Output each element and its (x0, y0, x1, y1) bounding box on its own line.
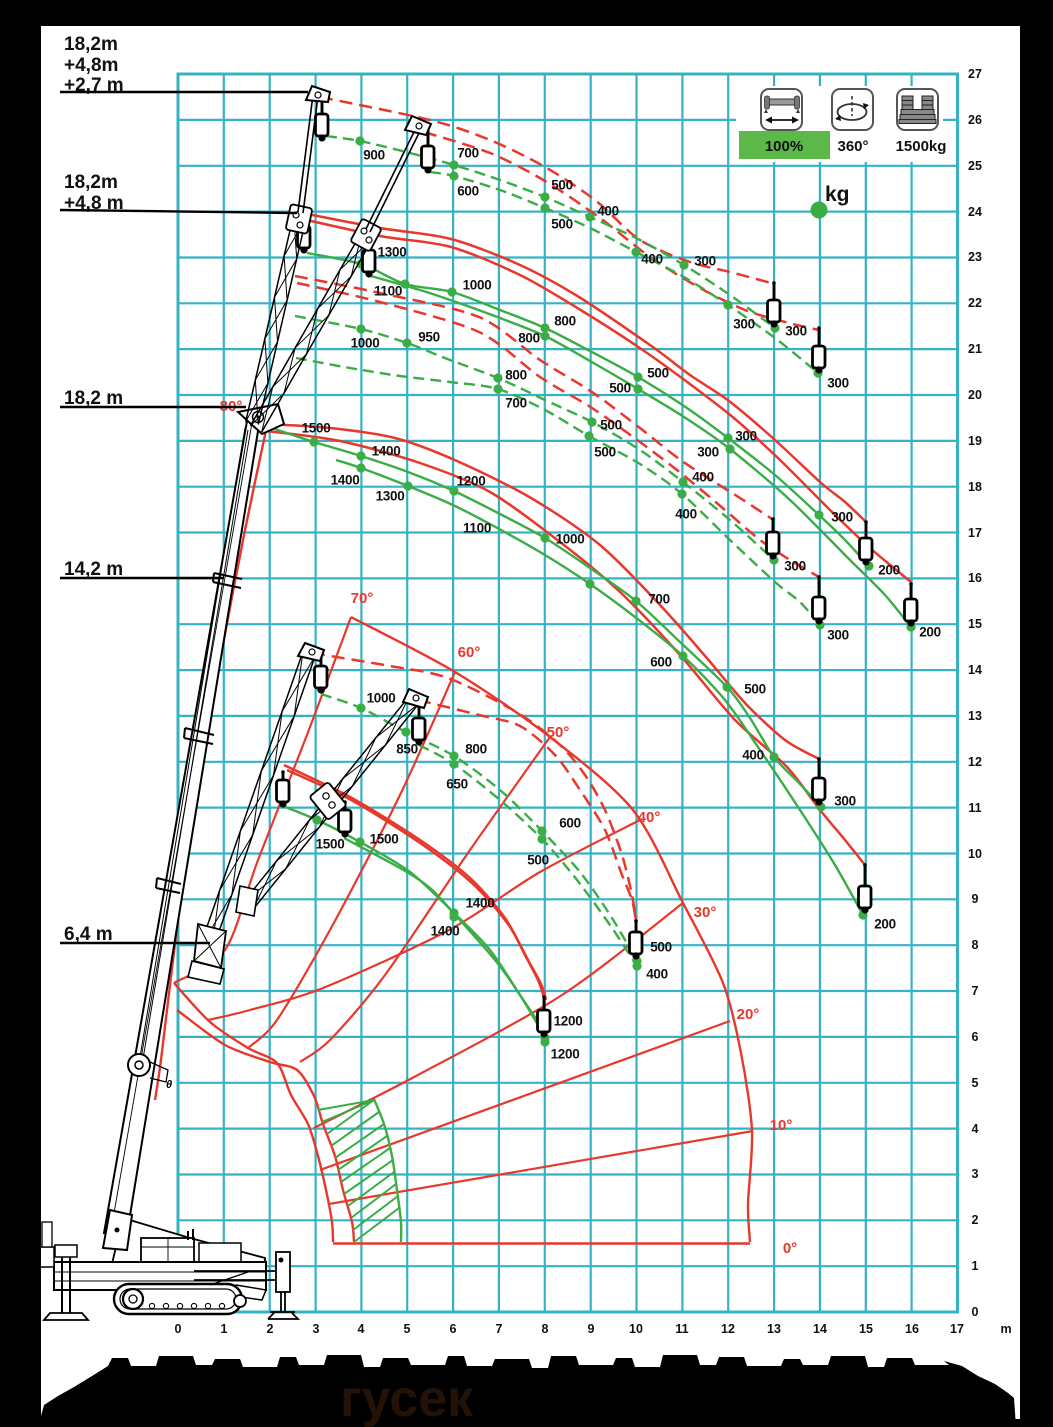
svg-text:17: 17 (950, 1322, 964, 1336)
svg-text:гусек: гусек (340, 1370, 474, 1427)
svg-text:600: 600 (650, 655, 672, 670)
svg-text:1500: 1500 (316, 837, 345, 852)
svg-text:1100: 1100 (374, 284, 402, 299)
svg-text:18,2m: 18,2m (64, 34, 118, 55)
svg-text:14: 14 (813, 1322, 827, 1336)
svg-text:400: 400 (646, 967, 668, 982)
svg-text:650: 650 (446, 777, 468, 792)
svg-text:700: 700 (457, 146, 479, 161)
svg-text:7: 7 (972, 984, 979, 998)
svg-text:300: 300 (827, 376, 849, 391)
svg-text:900: 900 (363, 148, 385, 163)
svg-text:300: 300 (694, 254, 716, 269)
svg-text:500: 500 (650, 940, 672, 955)
svg-text:100%: 100% (765, 138, 803, 155)
svg-text:400: 400 (597, 204, 619, 219)
svg-text:600: 600 (559, 816, 581, 831)
svg-text:16: 16 (968, 571, 982, 585)
svg-text:7: 7 (496, 1322, 503, 1336)
svg-text:360°: 360° (837, 138, 868, 155)
svg-text:5: 5 (404, 1322, 411, 1336)
svg-text:26: 26 (968, 113, 982, 127)
svg-text:17: 17 (968, 526, 982, 540)
svg-text:300: 300 (831, 510, 853, 525)
svg-text:1000: 1000 (556, 532, 585, 547)
svg-text:1500: 1500 (370, 832, 399, 847)
svg-text:1000: 1000 (463, 278, 492, 293)
svg-text:6: 6 (450, 1322, 457, 1336)
svg-text:500: 500 (600, 418, 622, 433)
svg-text:22: 22 (968, 296, 982, 310)
svg-text:1400: 1400 (331, 473, 360, 488)
svg-text:1400: 1400 (431, 924, 460, 939)
svg-text:40°: 40° (638, 809, 661, 826)
svg-text:400: 400 (641, 252, 663, 267)
svg-text:60°: 60° (458, 644, 481, 661)
svg-text:15: 15 (859, 1322, 873, 1336)
svg-text:800: 800 (518, 331, 540, 346)
svg-text:13: 13 (968, 709, 982, 723)
svg-text:18,2m: 18,2m (64, 172, 118, 193)
svg-text:600: 600 (457, 184, 479, 199)
svg-text:50°: 50° (547, 724, 570, 741)
svg-text:20°: 20° (737, 1006, 760, 1023)
svg-text:300: 300 (785, 324, 807, 339)
svg-text:3: 3 (313, 1322, 320, 1336)
svg-text:500: 500 (647, 366, 669, 381)
svg-text:30°: 30° (694, 904, 717, 921)
svg-text:19: 19 (968, 434, 982, 448)
svg-text:1200: 1200 (457, 474, 486, 489)
svg-text:700: 700 (505, 396, 527, 411)
svg-text:10°: 10° (770, 1117, 793, 1134)
svg-text:1200: 1200 (554, 1014, 583, 1029)
svg-text:2: 2 (267, 1322, 274, 1336)
svg-text:300: 300 (733, 317, 755, 332)
svg-text:3: 3 (972, 1167, 979, 1181)
svg-text:9: 9 (972, 892, 979, 906)
svg-text:300: 300 (827, 628, 849, 643)
svg-text:400: 400 (742, 748, 764, 763)
svg-text:0°: 0° (783, 1240, 797, 1257)
svg-text:24: 24 (968, 205, 982, 219)
svg-text:70°: 70° (351, 590, 374, 607)
svg-text:11: 11 (968, 801, 981, 815)
svg-text:12: 12 (968, 755, 982, 769)
svg-text:+4,8m: +4,8m (64, 55, 118, 76)
svg-text:0: 0 (972, 1305, 979, 1319)
svg-text:4: 4 (358, 1322, 365, 1336)
svg-text:1000: 1000 (367, 691, 396, 706)
svg-text:400: 400 (692, 470, 714, 485)
svg-text:850: 850 (396, 742, 418, 757)
svg-text:θ: θ (166, 1079, 172, 1091)
svg-text:300: 300 (735, 429, 757, 444)
svg-text:400: 400 (675, 507, 697, 522)
svg-text:16: 16 (905, 1322, 919, 1336)
svg-text:6: 6 (972, 1030, 979, 1044)
svg-text:500: 500 (527, 853, 549, 868)
svg-text:8: 8 (972, 938, 979, 952)
svg-text:23: 23 (968, 250, 982, 264)
svg-text:300: 300 (834, 794, 856, 809)
svg-text:5: 5 (972, 1076, 979, 1090)
svg-text:m: m (1000, 1322, 1011, 1336)
svg-text:4: 4 (972, 1122, 979, 1136)
svg-text:25: 25 (968, 159, 982, 173)
svg-text:500: 500 (551, 217, 573, 232)
svg-text:950: 950 (418, 330, 440, 345)
svg-text:1400: 1400 (372, 444, 401, 459)
svg-text:200: 200 (874, 917, 896, 932)
svg-text:kg: kg (825, 183, 850, 206)
svg-text:0: 0 (175, 1322, 182, 1336)
svg-text:10: 10 (968, 847, 982, 861)
svg-text:1400: 1400 (466, 896, 495, 911)
svg-text:500: 500 (609, 381, 631, 396)
svg-text:21: 21 (968, 342, 982, 356)
svg-text:800: 800 (554, 314, 576, 329)
svg-text:700: 700 (648, 592, 670, 607)
svg-text:1500kg: 1500kg (896, 138, 947, 155)
svg-text:500: 500 (594, 445, 616, 460)
svg-text:1: 1 (972, 1259, 979, 1273)
svg-text:1300: 1300 (376, 489, 405, 504)
svg-text:13: 13 (767, 1322, 781, 1336)
svg-text:18: 18 (968, 480, 982, 494)
svg-text:300: 300 (784, 559, 806, 574)
svg-text:200: 200 (878, 563, 900, 578)
svg-text:1200: 1200 (551, 1047, 580, 1062)
svg-text:11: 11 (675, 1322, 688, 1336)
svg-text:1000: 1000 (351, 336, 380, 351)
svg-text:500: 500 (551, 178, 573, 193)
svg-text:20: 20 (968, 388, 982, 402)
svg-text:1300: 1300 (378, 245, 407, 260)
svg-text:800: 800 (465, 742, 487, 757)
svg-text:2: 2 (972, 1213, 979, 1227)
svg-text:300: 300 (697, 445, 719, 460)
svg-text:200: 200 (919, 625, 941, 640)
svg-text:500: 500 (744, 682, 766, 697)
svg-text:15: 15 (968, 617, 982, 631)
svg-text:10: 10 (629, 1322, 643, 1336)
svg-text:1: 1 (221, 1322, 228, 1336)
svg-text:1500: 1500 (302, 421, 331, 436)
svg-text:14: 14 (968, 663, 982, 677)
svg-text:27: 27 (968, 67, 982, 81)
svg-text:1100: 1100 (463, 521, 491, 536)
svg-text:12: 12 (721, 1322, 735, 1336)
svg-text:9: 9 (588, 1322, 595, 1336)
svg-text:800: 800 (505, 368, 527, 383)
svg-text:8: 8 (542, 1322, 549, 1336)
